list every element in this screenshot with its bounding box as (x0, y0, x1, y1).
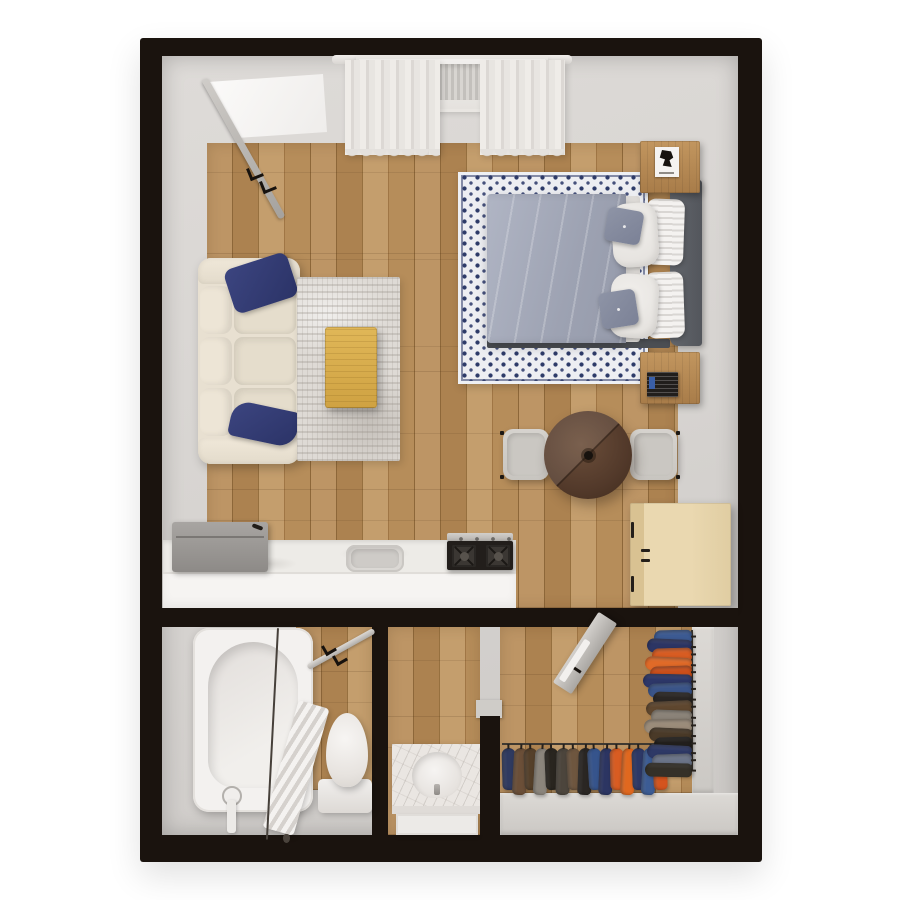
chair-leg (500, 475, 504, 479)
vanity-floor-mat (396, 814, 478, 835)
wardrobe-handle (631, 522, 634, 538)
hanger-hook-icon (507, 744, 509, 749)
curtain-left (345, 60, 440, 155)
bed-pillow-accent (603, 206, 644, 246)
hanger-hook-icon (628, 744, 630, 749)
hanger-hook-icon (563, 744, 565, 749)
hanger-hook-icon (691, 717, 696, 719)
hanger-hook-icon (691, 742, 696, 744)
hanger-hook-icon (691, 706, 696, 708)
hanger-hook-icon (529, 744, 531, 749)
hanger-hook-icon (606, 744, 608, 749)
kitchen-counter-front (163, 572, 516, 610)
hanger-hook-icon (691, 646, 696, 648)
bathtub-faucet (227, 800, 236, 833)
sofa-back-cushion (200, 337, 232, 385)
floor-plan-canvas (0, 0, 900, 900)
bathroom-wall (372, 627, 388, 835)
coffee-table (325, 327, 377, 408)
vanity-front (392, 806, 480, 814)
hanger-hook-icon (691, 699, 696, 701)
kitchen-sink (346, 545, 404, 572)
shower-curtain-rod-end (283, 834, 290, 843)
hanger-hook-icon (520, 744, 522, 749)
curtain-right (480, 60, 565, 155)
decor-card-art (659, 150, 674, 167)
kitchen-appliance (172, 522, 268, 572)
wardrobe (630, 503, 731, 606)
hanging-garment (645, 763, 692, 778)
hanger-hook-icon (691, 664, 696, 666)
hanger-hook-icon (637, 744, 639, 749)
clothes-rack-bottom (502, 746, 664, 802)
mirror-tag (566, 665, 582, 681)
hanger-hook-icon (691, 671, 696, 673)
clothes-rack-right (646, 630, 694, 772)
vanity-faucet (434, 784, 440, 795)
stove (447, 541, 513, 570)
hanger-hook-icon (691, 770, 696, 772)
dining-chair-left (503, 429, 549, 480)
divider-wall (162, 608, 738, 627)
nightstand-top (640, 141, 700, 193)
hanger-hook-icon (691, 734, 696, 736)
bed-pillow-accent (597, 288, 639, 329)
chair-leg (676, 475, 680, 479)
hanger-hook-icon (550, 744, 552, 749)
stove-burner (486, 545, 510, 567)
nightstand-decor-card (655, 147, 679, 177)
sofa-seat-cushion (234, 337, 296, 385)
dining-table (544, 411, 632, 499)
wardrobe-drawer-handle (641, 559, 650, 562)
nightstand-bottom (640, 352, 700, 404)
closet-side-ledge (692, 627, 714, 793)
hanger-hook-icon (691, 724, 696, 726)
chair-leg (500, 431, 504, 435)
chair-leg (676, 431, 680, 435)
hanger-hook-icon (615, 744, 617, 749)
stove-burner (452, 545, 476, 567)
hanger-hook-icon (584, 744, 586, 749)
sofa-back-cushion (200, 286, 232, 334)
hanger-hook-icon (571, 744, 573, 749)
wardrobe-drawer-handle (641, 549, 650, 552)
hanger-hook-icon (691, 653, 696, 655)
closet-partition-wall (480, 716, 500, 835)
dining-chair-right (630, 429, 677, 480)
decor-card-caption (659, 172, 674, 174)
stove-knob-strip (447, 533, 513, 541)
hanger-hook-icon (691, 636, 696, 638)
nightstand-book (647, 372, 678, 397)
wardrobe-handle (631, 576, 634, 592)
